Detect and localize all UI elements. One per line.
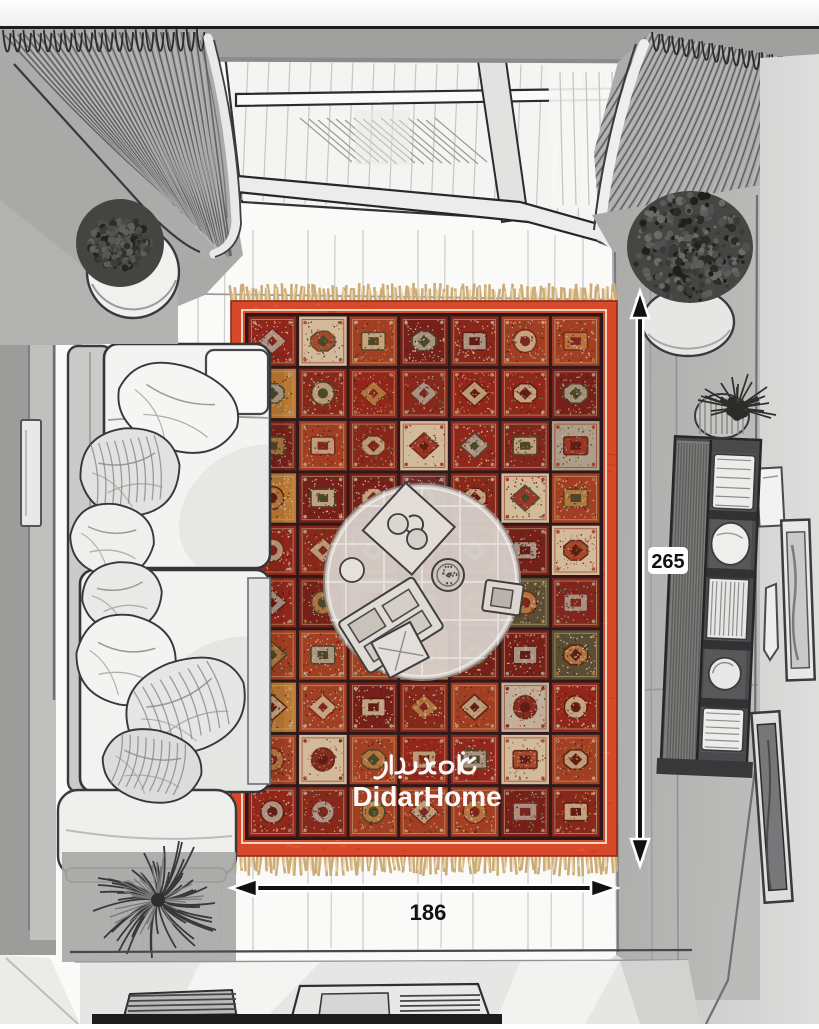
svg-text:186: 186 [410, 900, 447, 925]
svg-text:265: 265 [651, 551, 684, 573]
svg-text:DidarHome: DidarHome [352, 781, 501, 812]
